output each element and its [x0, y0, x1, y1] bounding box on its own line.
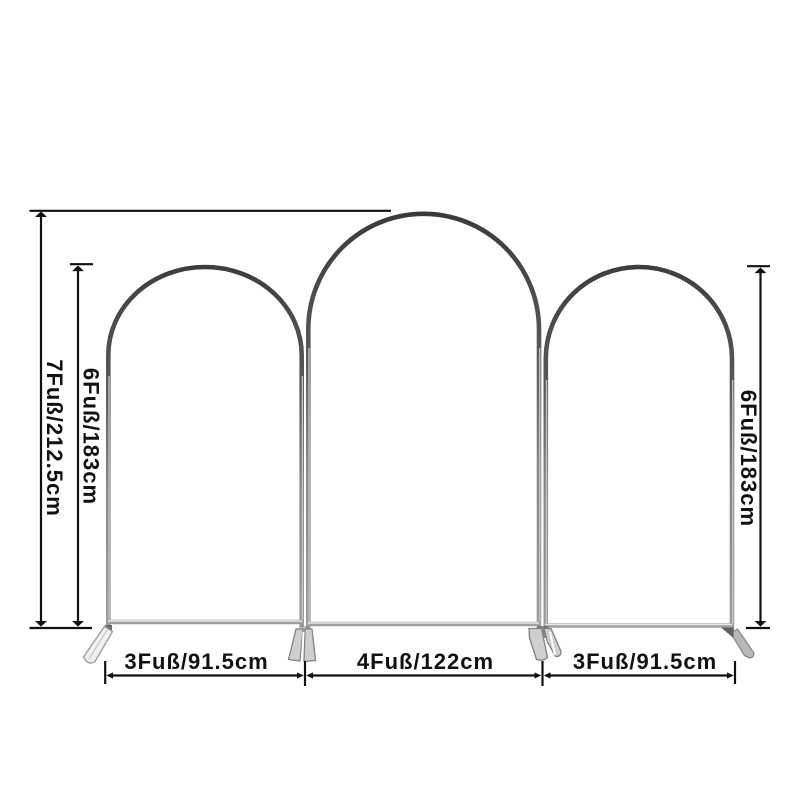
svg-text:3Fuß/91.5cm: 3Fuß/91.5cm	[573, 649, 717, 674]
svg-text:7Fuß/212.5cm: 7Fuß/212.5cm	[42, 359, 67, 517]
svg-text:4Fuß/122cm: 4Fuß/122cm	[357, 649, 494, 674]
svg-text:3Fuß/91.5cm: 3Fuß/91.5cm	[124, 649, 268, 674]
svg-text:6Fuß/183cm: 6Fuß/183cm	[79, 368, 104, 505]
svg-text:6Fuß/183cm: 6Fuß/183cm	[736, 390, 761, 527]
